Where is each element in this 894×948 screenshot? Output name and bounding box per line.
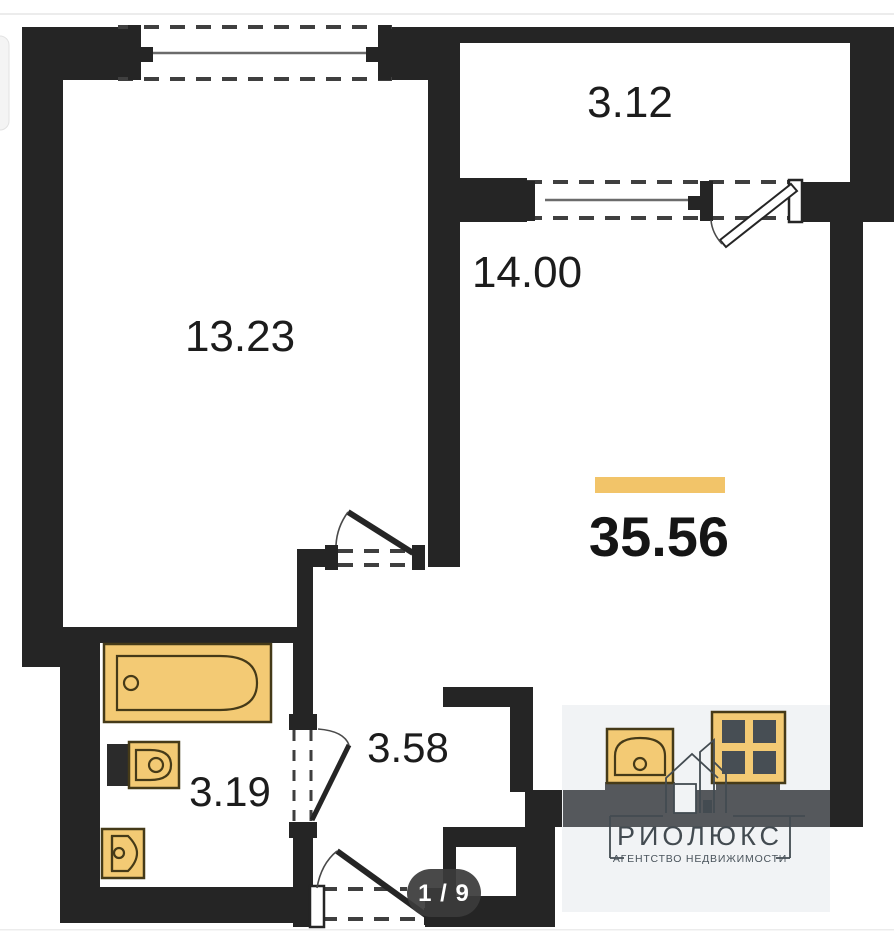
left-room-door xyxy=(325,512,425,570)
floorplan-photo: РИОЛЮКС АГЕНТСТВО НЕДВИЖИМОСТИ 3.12 14.0… xyxy=(0,0,894,948)
wall xyxy=(60,887,295,923)
washbasin-cabinet xyxy=(107,744,129,786)
door-frame xyxy=(412,545,425,570)
logo-tagline-text: АГЕНТСТВО НЕДВИЖИМОСТИ xyxy=(613,853,787,865)
window-stub xyxy=(366,47,378,62)
bottom-divider-line xyxy=(0,929,894,931)
door-swing-arc xyxy=(318,729,349,745)
badge-label: 1 / 9 xyxy=(418,880,470,907)
burner xyxy=(753,751,776,774)
window-handle xyxy=(688,196,701,210)
window-frame xyxy=(128,25,141,80)
door-leaf xyxy=(348,512,413,553)
room-label-left-room: 13.23 xyxy=(185,312,295,361)
total-area: 35.56 xyxy=(589,477,729,568)
burner xyxy=(722,720,745,743)
kitchen-sink xyxy=(607,729,673,783)
bathtub xyxy=(104,644,271,722)
door-frame xyxy=(289,822,317,838)
gallery-page-badge: 1 / 9 xyxy=(407,869,481,917)
window-left-room xyxy=(118,25,392,80)
wall xyxy=(510,707,533,792)
washbasin xyxy=(107,742,179,788)
room-label-main-room: 14.00 xyxy=(472,248,582,297)
door-frame xyxy=(325,545,338,570)
balcony-window-and-door xyxy=(523,180,802,247)
burner xyxy=(753,720,776,743)
stove xyxy=(712,712,785,783)
door-swing-arc xyxy=(317,851,337,888)
wall xyxy=(22,27,130,80)
wall xyxy=(443,687,533,707)
window-frame xyxy=(378,25,391,80)
wall xyxy=(60,643,100,923)
logo-brand-text: РИОЛЮКС xyxy=(617,821,783,851)
accent-bar xyxy=(595,477,725,493)
door-frame xyxy=(289,714,317,730)
window-stub xyxy=(141,47,153,62)
door-leaf xyxy=(312,745,349,820)
wall xyxy=(458,27,894,43)
gallery-prev-button[interactable] xyxy=(0,36,9,130)
wall xyxy=(428,43,460,567)
door-swing-arc xyxy=(336,512,348,545)
toilet xyxy=(102,829,144,878)
wall xyxy=(830,200,863,827)
wall xyxy=(850,27,894,222)
wall xyxy=(458,178,527,222)
room-label-hallway: 3.58 xyxy=(367,724,449,771)
wall xyxy=(63,627,313,643)
top-divider-line xyxy=(0,13,894,15)
balcony-door-leaf xyxy=(720,184,797,247)
total-area-label: 35.56 xyxy=(589,505,729,568)
burner xyxy=(722,751,745,774)
room-label-bathroom: 3.19 xyxy=(189,768,271,815)
door-frame xyxy=(310,886,324,927)
wall xyxy=(22,27,63,667)
window-frame xyxy=(523,181,535,221)
room-label-balcony: 3.12 xyxy=(587,78,673,127)
window-frame xyxy=(700,181,713,221)
